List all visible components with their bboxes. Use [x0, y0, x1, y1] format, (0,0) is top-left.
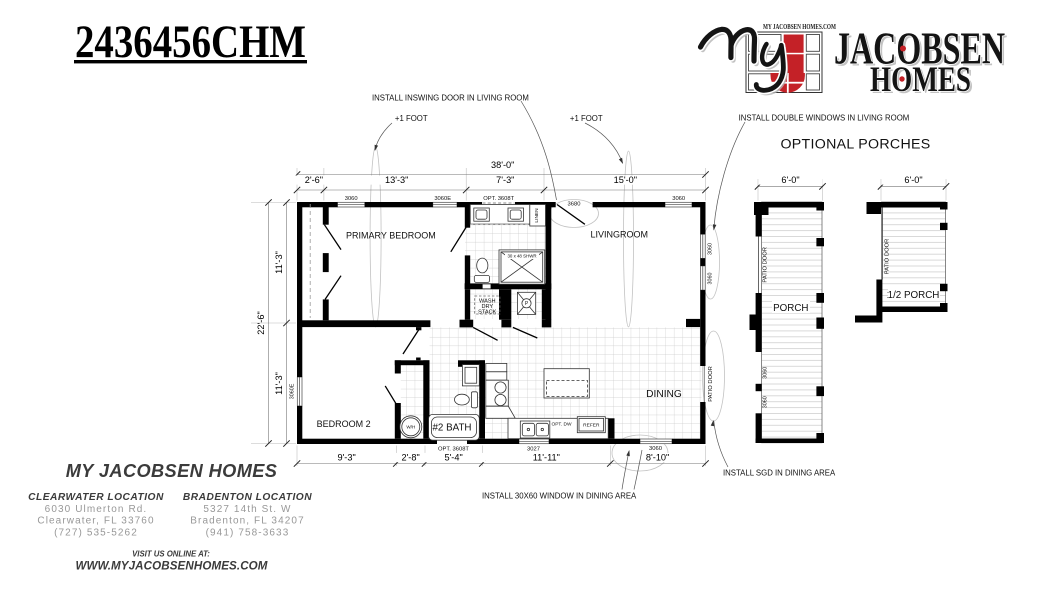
svg-text:WWW.MYJACOBSENHOMES.COM: WWW.MYJACOBSENHOMES.COM: [75, 560, 267, 573]
svg-text:22'-6": 22'-6": [256, 311, 266, 334]
svg-text:LINEN: LINEN: [534, 208, 540, 223]
svg-text:(941) 758-3633: (941) 758-3633: [206, 528, 290, 539]
svg-text:OPT. 3608T: OPT. 3608T: [438, 447, 469, 453]
svg-text:3027: 3027: [527, 447, 540, 453]
svg-text:7'-3": 7'-3": [496, 175, 514, 185]
svg-text:11'-3": 11'-3": [274, 251, 284, 274]
svg-text:PATIO DOOR: PATIO DOOR: [884, 239, 890, 275]
svg-text:15'-0": 15'-0": [614, 175, 637, 185]
svg-text:+1 FOOT: +1 FOOT: [395, 114, 428, 123]
svg-text:INSTALL 30X60 WINDOW IN DINING: INSTALL 30X60 WINDOW IN DINING AREA: [482, 492, 637, 501]
svg-text:BEDROOM 2: BEDROOM 2: [317, 419, 371, 429]
svg-text:8'-10": 8'-10": [646, 453, 669, 463]
svg-text:+1 FOOT: +1 FOOT: [570, 114, 603, 123]
svg-text:PORCH: PORCH: [773, 303, 808, 314]
svg-text:MY JACOBSEN HOMES.COM: MY JACOBSEN HOMES.COM: [763, 23, 836, 31]
svg-text:5327 14th St. W: 5327 14th St. W: [203, 504, 291, 515]
svg-text:30 x 48 SHWR: 30 x 48 SHWR: [507, 254, 536, 259]
svg-text:11'-3": 11'-3": [274, 372, 284, 395]
svg-text:REFER: REFER: [583, 423, 600, 429]
svg-text:3060E: 3060E: [434, 196, 451, 202]
svg-text:2'-6": 2'-6": [305, 175, 323, 185]
svg-text:Bradenton, FL 34207: Bradenton, FL 34207: [190, 516, 305, 527]
svg-text:13'-3": 13'-3": [385, 175, 408, 185]
svg-text:INSTALL DOUBLE WINDOWS IN LIVI: INSTALL DOUBLE WINDOWS IN LIVING ROOM: [739, 113, 910, 122]
svg-text:1/2 PORCH: 1/2 PORCH: [888, 290, 940, 301]
svg-text:3060: 3060: [762, 396, 768, 408]
svg-text:STACK: STACK: [478, 310, 497, 316]
svg-text:3060E: 3060E: [290, 383, 296, 399]
svg-text:3680: 3680: [568, 201, 581, 207]
svg-text:VISIT US ONLINE AT:: VISIT US ONLINE AT:: [132, 550, 210, 559]
svg-text:OPT. 3608T: OPT. 3608T: [483, 196, 514, 202]
svg-text:OPT. DW: OPT. DW: [552, 421, 572, 427]
svg-text:HOMES: HOMES: [870, 59, 971, 99]
svg-text:PATIO DOOR: PATIO DOOR: [708, 366, 714, 402]
svg-text:Clearwater, FL 33760: Clearwater, FL 33760: [37, 516, 154, 527]
svg-text:W/H: W/H: [406, 425, 415, 430]
svg-text:DINING: DINING: [646, 389, 682, 400]
svg-text:INSTALL SGD IN DINING AREA: INSTALL SGD IN DINING AREA: [723, 469, 836, 478]
svg-text:3060: 3060: [762, 367, 768, 379]
svg-text:3060: 3060: [649, 446, 662, 452]
svg-text:11'-11": 11'-11": [533, 453, 560, 463]
svg-text:6030 Ulmerton Rd.: 6030 Ulmerton Rd.: [45, 504, 148, 515]
svg-text:BRADENTON LOCATION: BRADENTON LOCATION: [183, 492, 312, 503]
svg-text:6'-0": 6'-0": [904, 175, 922, 185]
svg-text:CLEARWATER LOCATION: CLEARWATER LOCATION: [28, 492, 164, 503]
svg-text:LIVINGROOM: LIVINGROOM: [590, 230, 648, 240]
svg-text:9'-3": 9'-3": [337, 453, 355, 463]
svg-text:5'-4": 5'-4": [444, 453, 462, 463]
svg-text:38'-0": 38'-0": [491, 160, 514, 170]
svg-text:PATIO DOOR: PATIO DOOR: [762, 247, 768, 283]
svg-text:#2 BATH: #2 BATH: [432, 423, 471, 434]
svg-text:(727) 535-5262: (727) 535-5262: [54, 528, 138, 539]
svg-text:3060: 3060: [672, 196, 685, 202]
svg-text:6'-0": 6'-0": [781, 175, 799, 185]
svg-text:INSTALL INSWING DOOR IN LIVING: INSTALL INSWING DOOR IN LIVING ROOM: [372, 93, 529, 102]
svg-text:OPTIONAL PORCHES: OPTIONAL PORCHES: [780, 137, 930, 153]
svg-text:PRIMARY BEDROOM: PRIMARY BEDROOM: [346, 231, 436, 241]
svg-text:3060: 3060: [708, 273, 714, 285]
svg-text:3060: 3060: [708, 243, 714, 255]
svg-text:2'-8": 2'-8": [401, 453, 419, 463]
svg-text:MY JACOBSEN HOMES: MY JACOBSEN HOMES: [66, 461, 278, 481]
svg-text:3060: 3060: [345, 196, 358, 202]
